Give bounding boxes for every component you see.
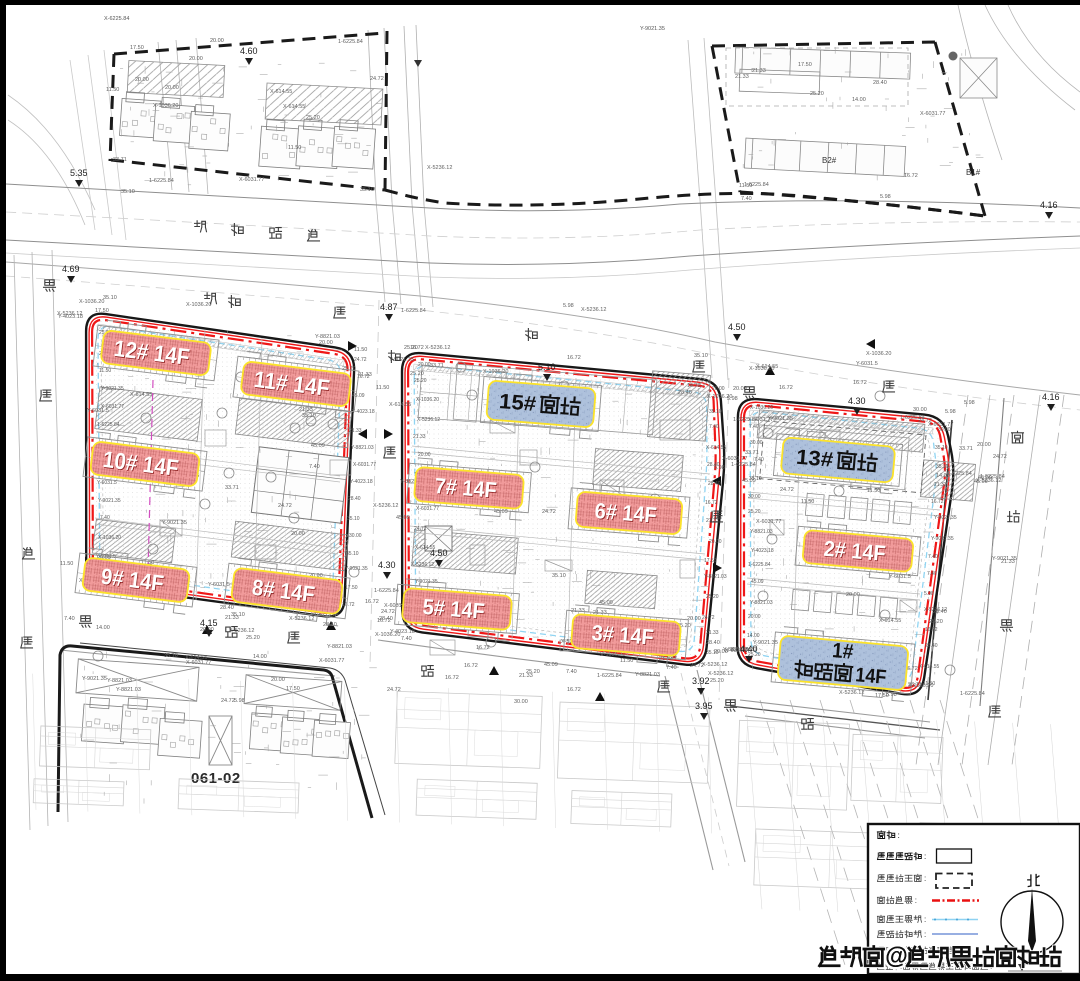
svg-text:X-614.55: X-614.55 [706, 445, 727, 451]
svg-text:24.72: 24.72 [702, 615, 715, 621]
svg-text:X-5236.12: X-5236.12 [924, 607, 947, 613]
svg-text:20.00: 20.00 [291, 531, 305, 537]
svg-text:7.40: 7.40 [709, 424, 719, 430]
svg-text:Y-9021.35: Y-9021.35 [345, 566, 368, 572]
svg-text:Y-8821.03: Y-8821.03 [635, 672, 660, 678]
svg-text:17.50: 17.50 [704, 558, 717, 564]
svg-text:B2#: B2# [822, 156, 837, 165]
svg-text:11.50: 11.50 [376, 385, 389, 391]
svg-text:X-5236.12: X-5236.12 [708, 671, 733, 677]
svg-text:4.50: 4.50 [430, 548, 448, 558]
svg-text:5.35: 5.35 [70, 168, 88, 178]
svg-text:25.20: 25.20 [306, 115, 320, 121]
svg-text:14.00: 14.00 [96, 625, 110, 631]
svg-text:X-614.55: X-614.55 [185, 655, 207, 661]
svg-text:33.71: 33.71 [959, 446, 973, 452]
svg-text:Y-4023.18: Y-4023.18 [390, 629, 415, 635]
svg-text:X-6031.77: X-6031.77 [239, 177, 264, 183]
svg-text:1-6225.84: 1-6225.84 [149, 178, 174, 184]
svg-text:14.00: 14.00 [852, 97, 866, 103]
svg-text:35.10: 35.10 [121, 189, 135, 195]
svg-text:Y-9021.35: Y-9021.35 [768, 416, 793, 422]
svg-text:24.72: 24.72 [370, 76, 384, 82]
svg-text:Y-8821.03: Y-8821.03 [704, 574, 727, 580]
svg-text:28.40: 28.40 [925, 643, 938, 649]
svg-text:17.50: 17.50 [345, 585, 358, 591]
svg-text:16.72: 16.72 [567, 687, 581, 693]
svg-text:17.50: 17.50 [286, 686, 300, 692]
svg-text:1-6225.84: 1-6225.84 [731, 462, 756, 468]
svg-text:X-614.55: X-614.55 [270, 89, 292, 95]
svg-text:25.20: 25.20 [246, 635, 260, 641]
svg-text:Y-8821.03: Y-8821.03 [750, 529, 773, 535]
svg-text:1-6225.84: 1-6225.84 [733, 417, 758, 423]
svg-text:Y-4023.18: Y-4023.18 [350, 479, 373, 485]
svg-text:B1#: B1# [966, 168, 981, 177]
svg-text:X-6031.77: X-6031.77 [416, 506, 439, 512]
svg-text:20.00: 20.00 [210, 38, 224, 44]
svg-text:X-6031.77: X-6031.77 [756, 519, 781, 525]
svg-text:X-614.55: X-614.55 [389, 402, 411, 408]
svg-text:16.72: 16.72 [464, 663, 478, 669]
svg-text:24.72: 24.72 [542, 509, 556, 515]
svg-text:Y-9021.35: Y-9021.35 [98, 498, 121, 504]
svg-text:16.72: 16.72 [705, 500, 718, 506]
svg-text:21.33: 21.33 [706, 518, 719, 524]
svg-text:X-1036.20: X-1036.20 [866, 351, 891, 357]
svg-text:1#: 1# [831, 639, 854, 664]
svg-text:20.00: 20.00 [748, 614, 761, 620]
svg-text:35.10: 35.10 [706, 650, 719, 656]
svg-text:20.00: 20.00 [165, 85, 179, 91]
svg-text:Y-9021.35: Y-9021.35 [162, 520, 187, 526]
svg-text:24.72: 24.72 [387, 687, 401, 693]
svg-text:28.40: 28.40 [707, 462, 720, 468]
svg-text:35.10: 35.10 [103, 295, 117, 301]
svg-text:45.09: 45.09 [599, 600, 613, 606]
svg-text::: : [924, 852, 926, 861]
svg-text:4.16: 4.16 [1042, 392, 1060, 402]
svg-text:X-1036.20: X-1036.20 [153, 103, 178, 109]
svg-text:25.20: 25.20 [414, 378, 427, 384]
svg-text:5.98: 5.98 [880, 194, 891, 200]
svg-text:14.00: 14.00 [253, 654, 267, 660]
svg-text:11.50: 11.50 [288, 145, 301, 151]
svg-text:7# 14F: 7# 14F [434, 473, 498, 503]
svg-text:X-614.55: X-614.55 [756, 364, 778, 370]
svg-text:35.10: 35.10 [552, 573, 566, 579]
svg-text:X-6225.84: X-6225.84 [104, 16, 129, 22]
svg-text:24.72: 24.72 [381, 609, 395, 615]
svg-text:30.00: 30.00 [748, 494, 761, 500]
svg-text:X-5236.12: X-5236.12 [425, 345, 450, 351]
svg-text::: : [898, 830, 900, 840]
svg-text:11.50: 11.50 [867, 488, 880, 494]
svg-text:Y-8821.03: Y-8821.03 [351, 445, 374, 451]
svg-text:14F: 14F [854, 664, 887, 689]
svg-text:X-5236.12: X-5236.12 [373, 503, 398, 509]
svg-text:35.10: 35.10 [164, 653, 178, 659]
svg-text:30.00: 30.00 [349, 533, 362, 539]
svg-text:X-6031.77: X-6031.77 [319, 658, 344, 664]
svg-text:7.40: 7.40 [100, 515, 110, 521]
svg-text:30.00: 30.00 [938, 427, 951, 433]
svg-text:061-02: 061-02 [191, 770, 241, 787]
svg-text:25.20: 25.20 [710, 678, 724, 684]
svg-text:33.71: 33.71 [430, 363, 444, 369]
svg-text:7.40: 7.40 [309, 464, 320, 470]
svg-text:11.50: 11.50 [99, 368, 111, 374]
svg-text:3.92: 3.92 [692, 676, 710, 686]
svg-text::: : [915, 896, 917, 905]
svg-text:24.72: 24.72 [414, 526, 427, 532]
svg-text:X-614.55: X-614.55 [130, 392, 152, 398]
svg-text::: : [924, 874, 926, 883]
svg-text:4.60: 4.60 [240, 46, 258, 56]
svg-text:4.30: 4.30 [848, 396, 866, 406]
svg-text:25.20: 25.20 [410, 371, 424, 377]
svg-text:28.40: 28.40 [220, 605, 234, 611]
svg-text:5.98: 5.98 [945, 409, 956, 415]
svg-text:5# 14F: 5# 14F [422, 594, 486, 624]
svg-text:24.72: 24.72 [780, 487, 794, 493]
svg-text:28.40: 28.40 [678, 390, 692, 396]
svg-text:25.20: 25.20 [810, 91, 824, 97]
svg-text:X-1036.20: X-1036.20 [79, 299, 104, 305]
svg-text:20.00: 20.00 [418, 362, 431, 368]
svg-text:11.50: 11.50 [923, 681, 935, 687]
svg-text:28.40: 28.40 [873, 80, 887, 86]
svg-text:30.00: 30.00 [514, 699, 528, 705]
svg-text:Y-8821.03: Y-8821.03 [107, 678, 132, 684]
svg-text:X-5236.12: X-5236.12 [839, 690, 864, 696]
svg-text:35.10: 35.10 [360, 187, 374, 193]
svg-text:Y-9021.35: Y-9021.35 [992, 556, 1017, 562]
svg-text:Y-8821.03: Y-8821.03 [327, 644, 352, 650]
svg-text:@: @ [885, 943, 907, 969]
svg-text:7.40: 7.40 [749, 424, 759, 430]
svg-text:21.33: 21.33 [413, 434, 426, 440]
svg-text:Y-9021.35: Y-9021.35 [101, 386, 124, 392]
svg-text:45.09: 45.09 [352, 393, 365, 399]
svg-text:Y-9021.35: Y-9021.35 [640, 26, 665, 32]
svg-text:20.00: 20.00 [712, 386, 725, 392]
svg-text:28.40: 28.40 [708, 481, 721, 487]
svg-text:35.10: 35.10 [709, 409, 722, 415]
svg-text:11.50: 11.50 [801, 499, 814, 505]
svg-text:24.72: 24.72 [354, 357, 367, 363]
svg-text:4.69: 4.69 [62, 264, 80, 274]
svg-text:28.40: 28.40 [379, 616, 393, 622]
svg-text:16.72: 16.72 [904, 173, 918, 179]
svg-text:20.00: 20.00 [846, 592, 860, 598]
svg-text:35.10: 35.10 [347, 516, 360, 522]
svg-text:28.40: 28.40 [348, 496, 361, 502]
svg-text:X-1036.20: X-1036.20 [186, 302, 211, 308]
svg-text:16.72: 16.72 [925, 627, 938, 633]
svg-text:5.98: 5.98 [234, 698, 245, 704]
svg-text:X-5236.12: X-5236.12 [57, 311, 82, 317]
svg-text:35.10: 35.10 [749, 476, 762, 482]
svg-text:7.40: 7.40 [64, 616, 75, 622]
svg-text:X-5236.12: X-5236.12 [427, 165, 452, 171]
svg-text:X-614.55: X-614.55 [283, 104, 305, 110]
svg-text:45.09: 45.09 [978, 475, 992, 481]
svg-text:20.00: 20.00 [709, 539, 722, 545]
svg-text:Y-4023.18: Y-4023.18 [352, 409, 375, 415]
svg-text:1-6225.84: 1-6225.84 [374, 588, 399, 594]
svg-text:21.33: 21.33 [706, 630, 719, 636]
svg-text:7.40: 7.40 [927, 571, 937, 577]
svg-text:5.10: 5.10 [538, 362, 556, 372]
svg-text:21.33: 21.33 [735, 74, 749, 80]
svg-text:20.00: 20.00 [135, 77, 149, 83]
svg-text:Y-9021.35: Y-9021.35 [82, 676, 107, 682]
svg-text:11.50: 11.50 [106, 87, 119, 93]
svg-text::: : [924, 930, 926, 939]
svg-text:25.20: 25.20 [526, 669, 540, 675]
svg-text:16.72: 16.72 [853, 380, 867, 386]
svg-text:16.72: 16.72 [687, 383, 701, 389]
svg-text:X-6031.77: X-6031.77 [101, 404, 124, 410]
svg-text:45.09: 45.09 [544, 662, 558, 668]
svg-text:7.40: 7.40 [401, 636, 412, 642]
svg-text:20.00: 20.00 [977, 442, 991, 448]
svg-text:5.98: 5.98 [964, 400, 975, 406]
svg-text:7.40: 7.40 [741, 196, 752, 202]
svg-text:17.50: 17.50 [95, 308, 109, 314]
svg-text:35.10: 35.10 [694, 353, 708, 359]
svg-text:1-6225.84: 1-6225.84 [597, 673, 622, 679]
svg-text:25.20: 25.20 [929, 619, 943, 625]
svg-text:21.33: 21.33 [349, 428, 362, 434]
svg-text:16.72: 16.72 [410, 345, 424, 351]
svg-text:16.72: 16.72 [342, 602, 355, 608]
svg-text:1-6225.84: 1-6225.84 [338, 39, 363, 45]
svg-text:7.40: 7.40 [666, 665, 677, 671]
svg-text:X-5236.12: X-5236.12 [417, 417, 440, 423]
svg-text:20.00: 20.00 [271, 677, 285, 683]
svg-text:1-6225.84: 1-6225.84 [401, 308, 426, 314]
svg-text:Y-8821.03: Y-8821.03 [116, 687, 141, 693]
svg-text:5.98: 5.98 [924, 591, 934, 597]
svg-text:5.98: 5.98 [563, 303, 574, 309]
svg-text:X-1036.20: X-1036.20 [98, 535, 121, 541]
svg-text:4.15: 4.15 [200, 618, 218, 628]
svg-text:X-6031.77: X-6031.77 [722, 456, 747, 462]
svg-text:20.00: 20.00 [687, 616, 701, 622]
svg-text:5.98: 5.98 [727, 396, 738, 402]
svg-text:4.87: 4.87 [380, 302, 398, 312]
svg-text:11.50: 11.50 [620, 658, 633, 664]
svg-text:20.00: 20.00 [418, 452, 431, 458]
svg-text:33.71: 33.71 [113, 157, 127, 163]
svg-text:24.72: 24.72 [221, 698, 235, 704]
svg-text:16.72: 16.72 [567, 355, 581, 361]
svg-text:11.50: 11.50 [354, 347, 367, 353]
svg-text:13#: 13# [795, 446, 834, 472]
svg-text:45.09: 45.09 [311, 443, 325, 449]
svg-text:21.33: 21.33 [752, 68, 766, 74]
svg-text:14.00: 14.00 [747, 633, 760, 639]
svg-text:X-1036.20: X-1036.20 [750, 405, 773, 411]
svg-text:4.30: 4.30 [378, 560, 396, 570]
svg-text:X-5236.12: X-5236.12 [702, 662, 727, 668]
svg-text::: : [924, 915, 926, 924]
svg-text:X-6031.77: X-6031.77 [920, 111, 945, 117]
svg-text:25.20: 25.20 [748, 509, 761, 515]
svg-text:17.50: 17.50 [798, 62, 812, 68]
svg-text:35.10: 35.10 [302, 413, 316, 419]
svg-text:1-6225.84: 1-6225.84 [900, 415, 925, 421]
svg-text:X-5236.12: X-5236.12 [289, 616, 314, 622]
svg-text:Y-6031.5: Y-6031.5 [856, 361, 878, 367]
svg-text:25.20: 25.20 [706, 594, 719, 600]
svg-text:20.00: 20.00 [189, 56, 203, 62]
svg-text:3# 14F: 3# 14F [591, 620, 655, 650]
svg-text:X-5236.12: X-5236.12 [581, 307, 606, 313]
svg-text:28.40: 28.40 [706, 640, 720, 646]
svg-text:15#: 15# [498, 390, 537, 416]
svg-text:11.50: 11.50 [739, 183, 752, 189]
svg-text:X-5236.12: X-5236.12 [411, 562, 434, 568]
svg-text:24.72: 24.72 [993, 454, 1007, 460]
svg-text:4.16: 4.16 [1040, 200, 1058, 210]
svg-text:21.33: 21.33 [225, 615, 239, 621]
svg-text:45.09: 45.09 [751, 579, 764, 585]
svg-text:Y-4023.18: Y-4023.18 [751, 548, 774, 554]
svg-text:X-1036.20: X-1036.20 [416, 397, 439, 403]
svg-text:14.00: 14.00 [936, 473, 950, 479]
svg-text:Y-9021.35: Y-9021.35 [934, 515, 957, 521]
svg-text:Y-6031.5: Y-6031.5 [97, 480, 117, 486]
svg-text:1-6225.84: 1-6225.84 [748, 562, 771, 568]
svg-text:17.50: 17.50 [130, 45, 144, 51]
svg-text:1-6225.84: 1-6225.84 [97, 422, 120, 428]
svg-text:30.00: 30.00 [913, 407, 927, 413]
svg-text:35.10: 35.10 [936, 464, 949, 470]
svg-text:33.71: 33.71 [225, 485, 239, 491]
svg-text:3.95: 3.95 [695, 701, 713, 711]
svg-text:30.00: 30.00 [750, 440, 763, 446]
svg-text:16.72: 16.72 [931, 499, 944, 505]
svg-text:35.10: 35.10 [346, 551, 359, 557]
svg-text:21.33: 21.33 [934, 482, 947, 488]
svg-text:Y-9021.35: Y-9021.35 [931, 536, 954, 542]
svg-text:4.50: 4.50 [728, 322, 746, 332]
svg-text:1-6225.84: 1-6225.84 [947, 471, 972, 477]
svg-text:16.72: 16.72 [365, 599, 379, 605]
svg-text:6# 14F: 6# 14F [594, 498, 658, 528]
svg-text:7.40: 7.40 [928, 554, 938, 560]
svg-text:16.72: 16.72 [779, 385, 793, 391]
svg-text:X-6031.77: X-6031.77 [353, 462, 376, 468]
svg-text:45.09: 45.09 [396, 515, 410, 521]
svg-text:16.72: 16.72 [445, 675, 459, 681]
svg-text:4.40: 4.40 [740, 644, 758, 654]
svg-text:20.00: 20.00 [319, 340, 333, 346]
svg-text:24.72: 24.72 [278, 503, 292, 509]
svg-text:7.40: 7.40 [754, 457, 764, 463]
svg-text:7.40: 7.40 [566, 669, 577, 675]
svg-text:11.50: 11.50 [60, 561, 73, 567]
svg-text:35.10: 35.10 [935, 445, 948, 451]
svg-text:X-614.55: X-614.55 [919, 664, 940, 670]
svg-text:1-6225.84: 1-6225.84 [960, 691, 985, 697]
